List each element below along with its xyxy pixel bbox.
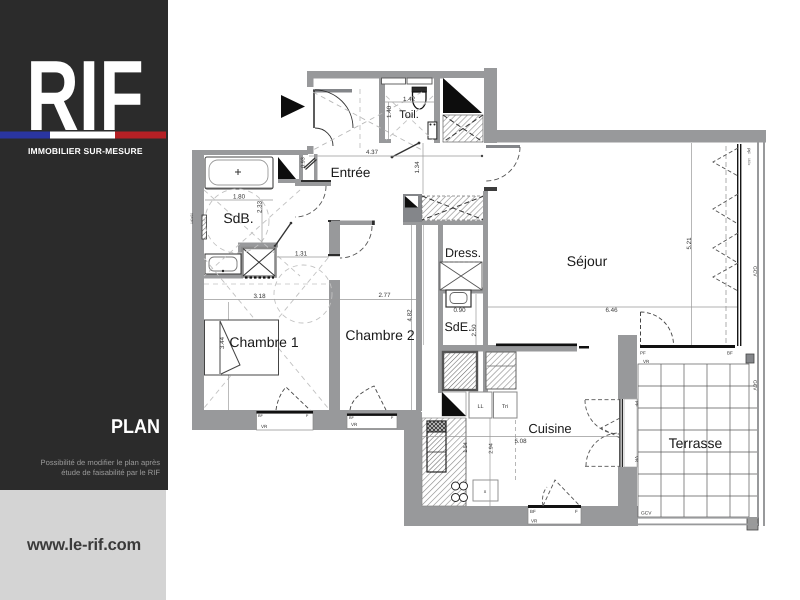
svg-text:SdE.: SdE. <box>444 320 471 334</box>
svg-text:160x: 160x <box>747 158 751 166</box>
svg-text:VR: VR <box>643 359 650 364</box>
svg-text:PLAN: PLAN <box>111 416 160 438</box>
svg-text:Entrée: Entrée <box>331 165 371 180</box>
svg-text:IMMOBILIER SUR-MESURE: IMMOBILIER SUR-MESURE <box>28 146 143 156</box>
svg-text:BF: BF <box>258 414 264 418</box>
svg-text:LL: LL <box>477 404 483 410</box>
svg-text:1.31: 1.31 <box>295 251 308 258</box>
svg-text:1.42: 1.42 <box>403 96 416 103</box>
svg-text:6.46: 6.46 <box>605 307 618 314</box>
svg-text:www.le-rif.com: www.le-rif.com <box>26 536 141 554</box>
svg-text:VR: VR <box>261 424 268 429</box>
svg-text:Terrasse: Terrasse <box>669 435 723 451</box>
svg-text:SdB.: SdB. <box>223 210 253 226</box>
svg-text:Possibilité de modifier le pla: Possibilité de modifier le plan après <box>41 458 161 467</box>
svg-text:140x50: 140x50 <box>190 213 194 224</box>
svg-text:Toil.: Toil. <box>399 109 419 121</box>
svg-text:VR: VR <box>634 456 639 462</box>
svg-text:2.94: 2.94 <box>489 443 495 454</box>
svg-text:GCV: GCV <box>752 380 758 391</box>
svg-text:Chambre 2: Chambre 2 <box>345 327 414 343</box>
svg-text:5.21: 5.21 <box>686 237 693 250</box>
svg-text:5.08: 5.08 <box>514 438 527 445</box>
svg-text:0.93: 0.93 <box>301 157 307 168</box>
svg-text:Tri: Tri <box>502 404 508 410</box>
svg-text:Cuisine: Cuisine <box>528 421 571 436</box>
svg-text:VR: VR <box>351 422 358 427</box>
svg-text:4.82: 4.82 <box>407 309 414 322</box>
svg-text:PF: PF <box>746 148 751 154</box>
svg-text:GCV: GCV <box>752 266 758 277</box>
svg-text:1.80: 1.80 <box>233 194 246 201</box>
svg-text:1.34: 1.34 <box>414 161 421 174</box>
svg-text:PF: PF <box>640 351 646 356</box>
svg-text:1.54: 1.54 <box>463 442 469 453</box>
svg-text:PF: PF <box>634 401 639 407</box>
svg-text:3.18: 3.18 <box>253 293 266 300</box>
svg-text:2.50: 2.50 <box>471 324 478 337</box>
svg-text:3.44: 3.44 <box>219 336 226 349</box>
svg-text:F: F <box>575 509 578 514</box>
svg-text:BF: BF <box>530 509 536 514</box>
svg-text:2.33: 2.33 <box>257 200 264 213</box>
svg-text:BF: BF <box>349 416 355 420</box>
svg-text:VR: VR <box>531 519 538 524</box>
svg-text:4.37: 4.37 <box>366 149 379 156</box>
svg-text:Chambre 1: Chambre 1 <box>229 334 298 350</box>
svg-text:2.77: 2.77 <box>378 292 391 299</box>
svg-text:BF: BF <box>727 351 733 356</box>
svg-text:Séjour: Séjour <box>567 253 608 269</box>
svg-text:Dress.: Dress. <box>445 246 481 260</box>
svg-text:0.90: 0.90 <box>453 307 466 314</box>
svg-text:1.40: 1.40 <box>386 105 393 118</box>
svg-text:étude de faisabilité par le RI: étude de faisabilité par le RIF <box>61 468 160 477</box>
svg-text:GCV: GCV <box>641 511 652 517</box>
